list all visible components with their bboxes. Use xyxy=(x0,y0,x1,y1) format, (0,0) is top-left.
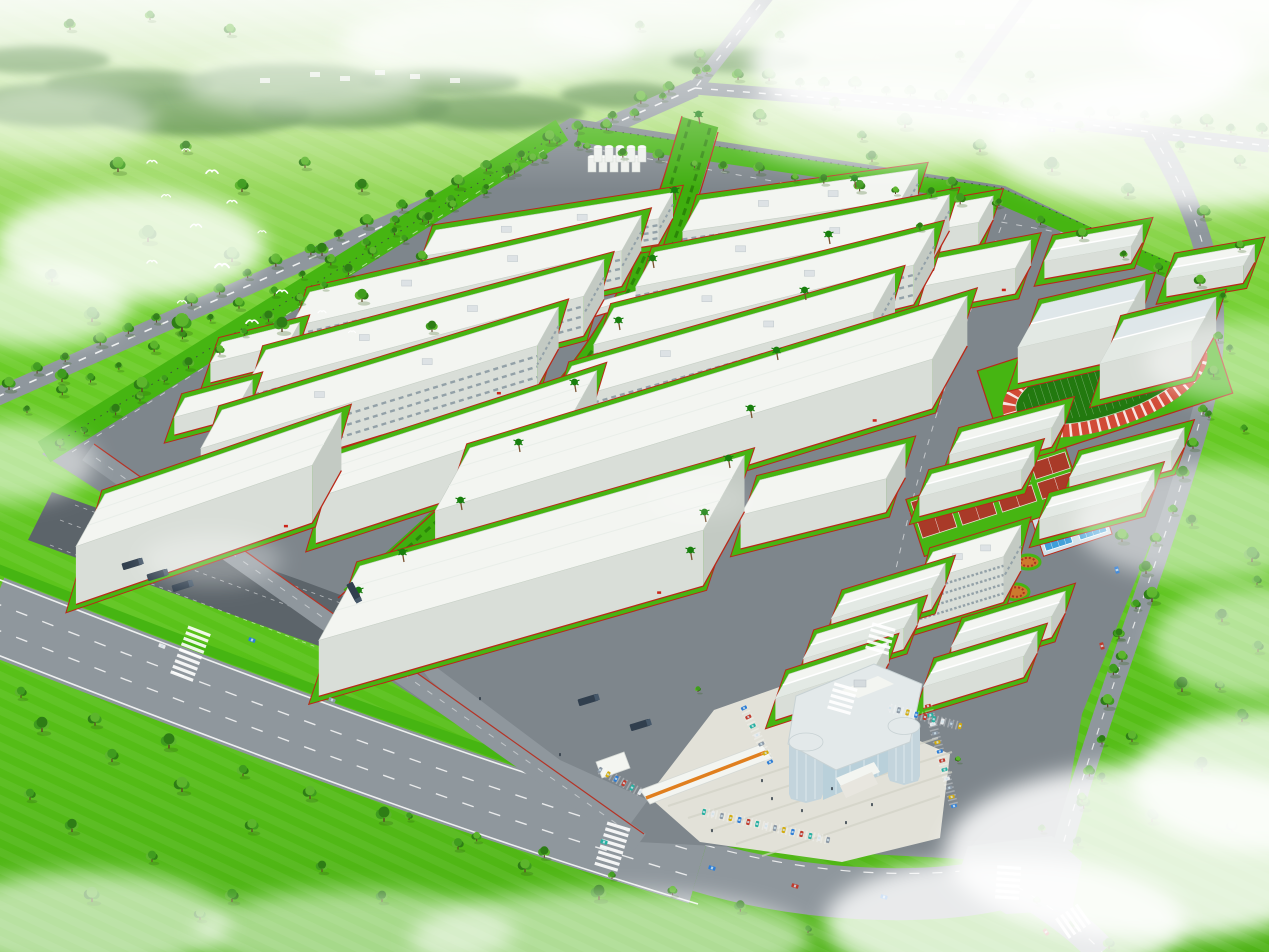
tower-cap xyxy=(888,718,920,735)
tree-shadow xyxy=(1221,300,1228,302)
tree-shadow xyxy=(425,223,436,227)
tree-crown xyxy=(184,357,192,365)
tree-crown xyxy=(520,859,530,869)
tree-crown xyxy=(609,871,614,876)
tree-crown xyxy=(57,369,67,379)
person xyxy=(711,829,713,832)
tree-crown xyxy=(357,289,367,299)
tree-crown xyxy=(1220,292,1225,297)
tree-crown xyxy=(300,271,305,276)
company-logo-mark xyxy=(1002,289,1006,292)
tree-crown xyxy=(124,323,132,331)
tree-crown xyxy=(271,253,281,263)
rooftop-unit xyxy=(854,680,866,687)
tree-shadow xyxy=(37,731,51,736)
rooftop-unit xyxy=(702,296,712,302)
tree-crown xyxy=(473,832,480,839)
tree-shadow xyxy=(379,821,393,826)
tree-shadow xyxy=(5,389,18,393)
tree-crown xyxy=(175,313,189,327)
tree-crown xyxy=(336,229,343,236)
tree-crown xyxy=(956,193,964,201)
tower-cap xyxy=(789,733,823,751)
tree-crown xyxy=(1189,438,1197,446)
tree-crown xyxy=(1241,424,1246,429)
tree-crown xyxy=(418,251,426,259)
tree-shadow xyxy=(399,210,410,214)
tree-shadow xyxy=(1238,250,1247,253)
tree-crown xyxy=(4,377,14,387)
tree-shadow xyxy=(238,191,251,195)
tree-crown xyxy=(241,328,246,333)
tree-shadow xyxy=(209,322,216,324)
tree-shadow xyxy=(154,323,163,326)
tree-crown xyxy=(137,377,148,388)
tree-shadow xyxy=(1122,258,1129,260)
person xyxy=(761,779,763,782)
industrial-park-rendering xyxy=(0,0,1269,952)
tree-shadow xyxy=(27,800,38,804)
tree-shadow xyxy=(68,831,81,835)
tree-shadow xyxy=(957,763,962,765)
tree-shadow xyxy=(1200,217,1213,221)
rooftop-unit xyxy=(804,270,814,276)
rooftop-unit xyxy=(508,256,518,262)
tree-shadow xyxy=(301,278,308,280)
company-logo-mark xyxy=(284,525,288,528)
tree-shadow xyxy=(63,362,72,365)
tree-shadow xyxy=(83,434,90,436)
rooftop-unit xyxy=(828,191,838,197)
tree-shadow xyxy=(450,210,459,213)
tree-shadow xyxy=(96,345,109,349)
tree-crown xyxy=(1147,587,1158,598)
rooftop-unit xyxy=(314,392,324,398)
tree-shadow xyxy=(185,368,196,372)
tree-shadow xyxy=(474,841,483,844)
tree-crown xyxy=(318,861,326,869)
cloud xyxy=(735,74,1035,170)
tree-shadow xyxy=(521,872,534,876)
tree-shadow xyxy=(297,303,306,306)
tree-crown xyxy=(296,293,303,300)
tree-crown xyxy=(1133,600,1140,607)
tree-crown xyxy=(540,846,548,854)
tree-shadow xyxy=(243,336,250,338)
tree-crown xyxy=(1200,405,1207,412)
rooftop-unit xyxy=(660,351,670,357)
rooftop-unit xyxy=(359,335,369,341)
tree-shadow xyxy=(929,197,938,200)
tree-crown xyxy=(379,807,390,818)
tree-crown xyxy=(392,227,397,232)
person xyxy=(479,697,481,700)
tree-crown xyxy=(1155,263,1162,270)
tree-crown xyxy=(428,321,436,329)
rooftop-unit xyxy=(467,306,477,312)
tree-crown xyxy=(87,373,94,380)
tree-crown xyxy=(1128,731,1136,739)
tree-shadow xyxy=(117,370,124,372)
company-logo-mark xyxy=(497,392,501,395)
rooftop-unit xyxy=(758,200,768,206)
tree-shadow xyxy=(997,206,1004,208)
tree-shadow xyxy=(149,862,160,866)
tree-shadow xyxy=(393,225,402,228)
tree-shadow xyxy=(175,331,193,337)
tree-shadow xyxy=(277,331,291,336)
tree-shadow xyxy=(1119,662,1130,666)
tree-crown xyxy=(112,404,120,412)
tree-shadow xyxy=(403,243,410,245)
tree-shadow xyxy=(327,265,338,269)
tree-crown xyxy=(1196,275,1204,283)
tree-shadow xyxy=(370,256,379,259)
tree-shadow xyxy=(1201,414,1210,417)
tree-crown xyxy=(956,756,960,760)
tree-shadow xyxy=(1242,432,1249,434)
tree-shadow xyxy=(319,872,330,876)
cloud xyxy=(182,50,422,114)
tree-crown xyxy=(454,838,462,846)
tree-crown xyxy=(1099,735,1106,742)
tree-crown xyxy=(917,222,922,227)
tree-shadow xyxy=(363,227,376,231)
tree-crown xyxy=(317,243,327,253)
tree-shadow xyxy=(894,194,901,196)
tree-shadow xyxy=(88,382,97,385)
tree-shadow xyxy=(216,294,227,298)
tree-crown xyxy=(216,345,223,352)
tree-shadow xyxy=(918,230,925,232)
tree-crown xyxy=(424,212,432,220)
person xyxy=(559,753,561,756)
tree-shadow xyxy=(1190,449,1201,453)
company-logo-mark xyxy=(657,591,661,594)
tree-shadow xyxy=(429,332,440,336)
tree-shadow xyxy=(358,301,371,305)
tree-crown xyxy=(1118,651,1126,659)
tree-crown xyxy=(1109,664,1117,672)
tree-shadow xyxy=(856,191,867,195)
tree-shadow xyxy=(245,278,254,281)
tree-shadow xyxy=(164,748,178,753)
tree-crown xyxy=(24,405,29,410)
tree-crown xyxy=(235,297,243,305)
tree-shadow xyxy=(248,831,261,835)
tree-crown xyxy=(392,216,399,223)
tree-shadow xyxy=(272,296,281,299)
rooftop-unit xyxy=(764,321,774,327)
cloud xyxy=(650,482,750,518)
tree-crown xyxy=(696,686,700,690)
tree-crown xyxy=(1078,228,1086,236)
tree-crown xyxy=(208,314,213,319)
tree-shadow xyxy=(1079,239,1090,243)
tree-shadow xyxy=(1156,272,1165,275)
tree-shadow xyxy=(125,334,136,338)
rooftop-unit xyxy=(981,545,991,551)
tree-crown xyxy=(1237,241,1244,248)
tree-shadow xyxy=(1117,638,1126,641)
tree-shadow xyxy=(1147,601,1161,606)
tree-shadow xyxy=(112,415,123,419)
tree-shadow xyxy=(1100,745,1109,748)
tree-crown xyxy=(227,889,237,899)
tree-crown xyxy=(1037,216,1044,223)
tree-shadow xyxy=(187,306,200,310)
tree-crown xyxy=(107,749,117,759)
tree-shadow xyxy=(1129,742,1140,746)
tree-crown xyxy=(26,789,34,797)
tree-crown xyxy=(398,199,406,207)
rendering-canvas xyxy=(0,0,1269,952)
tree-shadow xyxy=(323,289,330,291)
tree-shadow xyxy=(236,308,247,312)
tree-crown xyxy=(369,247,376,254)
tree-crown xyxy=(344,264,352,272)
rooftop-unit xyxy=(402,280,412,286)
tree-crown xyxy=(321,281,326,286)
tree-shadow xyxy=(108,761,121,765)
tree-crown xyxy=(305,786,315,796)
tree-crown xyxy=(1103,694,1113,704)
tree-shadow xyxy=(59,395,70,399)
tree-shadow xyxy=(58,381,71,385)
tree-crown xyxy=(239,765,247,773)
tree-crown xyxy=(37,717,48,728)
tree-crown xyxy=(277,317,288,328)
tree-shadow xyxy=(18,698,29,702)
tree-crown xyxy=(116,362,121,367)
tree-shadow xyxy=(358,191,371,195)
rooftop-unit xyxy=(736,246,746,252)
tree-crown xyxy=(1254,576,1261,583)
tree-shadow xyxy=(137,401,146,404)
person xyxy=(801,809,803,812)
tree-shadow xyxy=(1038,225,1047,228)
tree-shadow xyxy=(177,791,191,796)
person xyxy=(871,803,873,806)
tree-crown xyxy=(153,313,160,320)
tree-crown xyxy=(62,353,69,360)
tree-crown xyxy=(1116,629,1123,636)
tree-crown xyxy=(162,375,167,380)
tree-shadow xyxy=(957,204,968,208)
tree-shadow xyxy=(1110,675,1121,679)
tree-shadow xyxy=(1197,286,1208,290)
tree-crown xyxy=(996,198,1001,203)
tree-shadow xyxy=(25,413,32,415)
tree-crown xyxy=(1121,250,1126,255)
person xyxy=(771,797,773,800)
tree-shadow xyxy=(34,373,45,377)
tree-crown xyxy=(150,341,158,349)
tree-crown xyxy=(669,886,676,893)
tree-crown xyxy=(17,687,25,695)
person xyxy=(845,821,847,824)
tree-shadow xyxy=(336,239,345,242)
tree-shadow xyxy=(163,383,170,385)
rooftop-unit xyxy=(422,359,432,365)
tree-shadow xyxy=(407,820,414,822)
tree-crown xyxy=(264,310,272,318)
tree-crown xyxy=(33,362,41,370)
tree-shadow xyxy=(137,391,151,396)
tree-shadow xyxy=(428,199,437,202)
tree-shadow xyxy=(541,857,552,861)
tree-crown xyxy=(449,200,456,207)
tree-shadow xyxy=(1177,691,1191,696)
tree-shadow xyxy=(240,776,251,780)
tree-crown xyxy=(427,190,434,197)
tree-shadow xyxy=(307,255,318,259)
tree-shadow xyxy=(610,879,617,881)
tree-shadow xyxy=(419,262,430,266)
tree-shadow xyxy=(306,798,319,802)
tree-crown xyxy=(247,819,257,829)
tree-crown xyxy=(164,733,175,744)
tree-shadow xyxy=(318,255,331,259)
tree-shadow xyxy=(482,196,489,198)
tree-shadow xyxy=(393,235,400,237)
tree-shadow xyxy=(217,355,226,358)
tree-crown xyxy=(90,712,100,722)
tree-shadow xyxy=(697,693,702,695)
cloud xyxy=(142,534,282,586)
tree-shadow xyxy=(345,275,356,279)
rooftop-unit xyxy=(501,226,511,232)
tree-shadow xyxy=(1134,609,1143,612)
rooftop-unit xyxy=(577,214,587,220)
tree-shadow xyxy=(151,352,162,356)
tree-shadow xyxy=(1103,707,1116,711)
company-logo-mark xyxy=(873,419,877,422)
tree-shadow xyxy=(455,849,466,853)
tree-shadow xyxy=(180,339,189,342)
person xyxy=(831,787,833,790)
tree-crown xyxy=(406,812,411,817)
tree-crown xyxy=(363,238,370,245)
tree-crown xyxy=(148,851,156,859)
tree-crown xyxy=(362,214,372,224)
tree-shadow xyxy=(1207,418,1214,420)
tree-shadow xyxy=(271,266,284,270)
tree-crown xyxy=(177,777,188,788)
tree-crown xyxy=(82,427,87,432)
tree-crown xyxy=(401,235,406,240)
tree-crown xyxy=(307,244,315,252)
tree-crown xyxy=(67,819,77,829)
tree-shadow xyxy=(91,725,104,729)
